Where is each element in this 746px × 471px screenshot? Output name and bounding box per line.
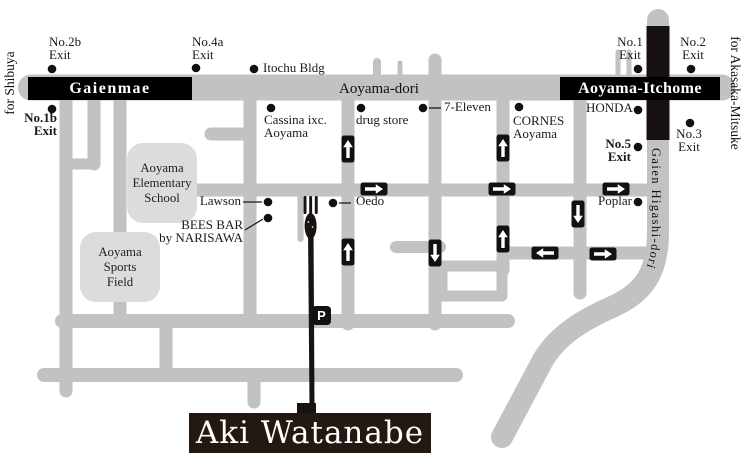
map-point-dot bbox=[192, 64, 201, 73]
direction-arrow-up-icon bbox=[342, 239, 355, 266]
direction-arrow-down-icon bbox=[429, 240, 442, 267]
map-point-dot bbox=[357, 104, 366, 113]
map-point-dot bbox=[267, 104, 276, 113]
direction-for-akasaka-mitsuke: for Akasaka-Mitsuke bbox=[727, 36, 743, 150]
direction-arrow-right-icon bbox=[489, 183, 516, 196]
map-point-dot bbox=[687, 65, 696, 74]
map-point-dot bbox=[264, 198, 273, 207]
station-gaienmae: Gaienmae bbox=[28, 77, 192, 100]
restaurant-name: Aki Watanabe bbox=[196, 415, 424, 451]
map-point-dot bbox=[48, 105, 57, 114]
map-point-dot bbox=[250, 65, 259, 74]
direction-for-shibuya: for Shibuya bbox=[2, 51, 18, 114]
station-aoyama-itchome: Aoyama-Itchome bbox=[560, 77, 720, 100]
direction-arrow-right-icon bbox=[361, 183, 388, 196]
map-point-dot bbox=[634, 143, 643, 152]
map-point-dot bbox=[329, 199, 338, 208]
direction-arrow-right-icon bbox=[590, 248, 617, 261]
parking-icon: P bbox=[312, 306, 331, 325]
direction-arrow-down-icon bbox=[572, 201, 585, 228]
map-canvas: Gaien Higashi-dori Aoyama-dori AoyamaEle… bbox=[0, 0, 746, 471]
map-point-dot bbox=[686, 119, 695, 128]
direction-arrow-up-icon bbox=[342, 136, 355, 163]
direction-arrow-up-icon bbox=[497, 226, 510, 253]
map-point-dot bbox=[515, 103, 524, 112]
restaurant-name-banner: Aki Watanabe bbox=[189, 413, 431, 453]
map-point-dot bbox=[634, 198, 643, 207]
map-point-dot bbox=[419, 104, 428, 113]
street-small-loop bbox=[442, 266, 502, 296]
map-point-dot bbox=[634, 65, 643, 74]
map-point-dot bbox=[264, 214, 273, 223]
direction-arrow-right-icon bbox=[603, 183, 630, 196]
direction-arrow-up-icon bbox=[497, 135, 510, 162]
aoyama-dori-label: Aoyama-dori bbox=[339, 81, 419, 97]
direction-arrow-left-icon bbox=[532, 247, 559, 260]
map-point-dot bbox=[48, 65, 57, 74]
road-network: Gaien Higashi-dori Aoyama-dori bbox=[0, 0, 746, 471]
map-point-dot bbox=[634, 106, 643, 115]
